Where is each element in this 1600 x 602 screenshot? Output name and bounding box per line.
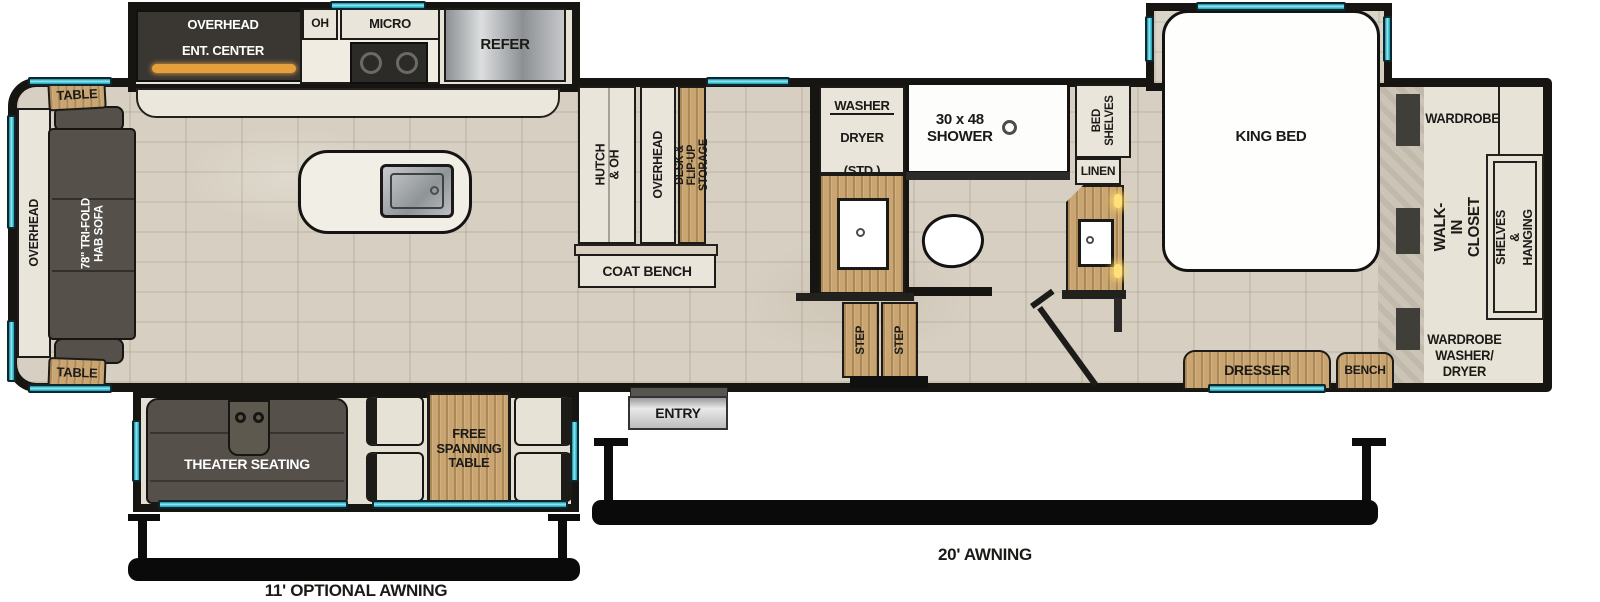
shower: 30 x 48 SHOWER [906, 82, 1070, 174]
awning-bracket [604, 446, 613, 506]
microwave: MICRO [340, 8, 440, 40]
dining-chair [366, 396, 424, 446]
closet-step-tread [1396, 94, 1420, 146]
step-label: STEP [854, 326, 867, 355]
faucet-icon [430, 186, 439, 195]
dining-chair [366, 452, 424, 502]
pocket-door-wall [908, 287, 992, 296]
bed-shelves: BED SHELVES [1075, 84, 1131, 158]
vanity-light-icon [1114, 194, 1122, 208]
awning-bracket [128, 514, 160, 521]
shelves-hanging-cabinet: SHELVES & HANGING [1486, 154, 1544, 320]
rear-overhead-label: OVERHEAD [27, 199, 41, 267]
vanity-sink [1078, 219, 1114, 267]
wardrobe-washer-dryer: WARDROBE WASHER/ DRYER [1414, 324, 1514, 386]
oh-label: OH [311, 17, 328, 31]
walk-in-closet-label: WALK-IN CLOSET [1433, 197, 1483, 258]
free-spanning-table-label: FREE SPANNING TABLE [436, 427, 501, 472]
refer-label: REFER [480, 36, 529, 53]
linen-cabinet: LINEN [1075, 158, 1121, 185]
window [7, 115, 16, 229]
window [706, 77, 790, 86]
micro-label: MICRO [369, 17, 411, 32]
awning-bracket [548, 514, 580, 521]
awning-bracket [1362, 446, 1371, 506]
step-base [850, 376, 928, 388]
stove-icon [350, 42, 428, 84]
dining-chair [514, 452, 572, 502]
desk-flip-up-storage: DESK & FLIP-UP STORAGE [678, 86, 706, 244]
optional-awning-label: 11' OPTIONAL AWNING [206, 580, 506, 602]
step: STEP [842, 302, 879, 378]
table-label: TABLE [56, 365, 97, 381]
window [158, 500, 348, 509]
fireplace-icon [152, 64, 296, 73]
bench-label: BENCH [1344, 364, 1385, 378]
closet-step-tread [1396, 208, 1420, 254]
faucet-icon [856, 228, 865, 237]
coat-bench-label: COAT BENCH [602, 263, 691, 279]
vanity-light-icon [1114, 264, 1122, 278]
shelves-hanging-label: SHELVES & HANGING [1495, 209, 1536, 265]
window [132, 420, 141, 482]
tri-fold-sofa: 78" TRI-FOLD HAB SOFA [48, 128, 136, 340]
dryer-label: DRYER [840, 130, 884, 145]
step-label: STEP [893, 326, 906, 355]
shower-glass [906, 172, 1070, 180]
hutch-cabinet: HUTCH & OH [578, 86, 636, 244]
dining-chair [514, 396, 572, 446]
theater-seating: THEATER SEATING [146, 398, 348, 504]
coat-bench: COAT BENCH [578, 254, 716, 288]
king-bed: KING BED [1162, 10, 1380, 272]
window [28, 77, 112, 86]
desk-overhead-cabinet: OVERHEAD [640, 86, 676, 244]
awning-bar [592, 500, 1378, 525]
vanity-base [796, 293, 914, 301]
bed-shelves-label: BED SHELVES [1090, 96, 1115, 146]
theater-seating-label: THEATER SEATING [148, 456, 346, 472]
bedroom-bench: BENCH [1336, 352, 1394, 390]
hutch-label: HUTCH & OH [593, 139, 620, 190]
window [570, 420, 579, 482]
walk-in-closet: WALK-IN CLOSET [1426, 108, 1490, 346]
king-bed-label: KING BED [1236, 128, 1307, 145]
island-sink [380, 164, 454, 218]
entry-step: ENTRY [628, 396, 728, 430]
window [28, 384, 112, 393]
faucet-icon [1086, 236, 1094, 244]
window [1196, 2, 1346, 11]
ent-overhead-label: OVERHEAD [138, 18, 308, 33]
awning-label: 20' AWNING [835, 544, 1135, 566]
vanity-post [1114, 298, 1122, 332]
sofa-label: 78" TRI-FOLD HAB SOFA [79, 194, 104, 274]
desk-overhead-label: OVERHEAD [651, 131, 665, 199]
desk-storage-label: DESK & FLIP-UP STORAGE [674, 139, 710, 191]
free-spanning-table: FREE SPANNING TABLE [427, 392, 511, 506]
shower-label: 30 x 48 SHOWER [927, 111, 993, 146]
awning-bar [128, 558, 580, 581]
washer-dryer-closet: WASHER DRYER (STD.) [819, 86, 905, 174]
awning-bracket [594, 438, 628, 446]
refrigerator: REFER [444, 8, 566, 82]
wardrobe-washer-dryer-label: WARDROBE WASHER/ DRYER [1427, 331, 1501, 379]
step: STEP [881, 302, 918, 378]
window [372, 500, 568, 509]
oh-cabinet: OH [302, 8, 338, 40]
entertainment-center: OVERHEAD ENT. CENTER [136, 10, 310, 82]
theater-console [228, 400, 270, 456]
table-label: TABLE [56, 86, 98, 103]
kitchen-counter [136, 88, 560, 118]
shower-drain-icon [1002, 120, 1017, 135]
entry-label: ENTRY [655, 405, 700, 421]
ent-center-label: ENT. CENTER [138, 44, 308, 59]
window [1383, 16, 1392, 62]
window [1145, 16, 1154, 62]
bath-wall [810, 86, 819, 298]
dresser-label: DRESSER [1224, 362, 1290, 378]
rv-floor-plan: OVERHEAD ENT. CENTER OH MICRO REFER OVER… [0, 0, 1600, 602]
window [1208, 384, 1326, 393]
rear-overhead-cabinet: OVERHEAD [17, 108, 51, 358]
linen-label: LINEN [1081, 165, 1116, 179]
window [7, 320, 16, 382]
window [330, 1, 426, 10]
awning-bracket [1352, 438, 1386, 446]
washer-label: WASHER [830, 98, 893, 115]
